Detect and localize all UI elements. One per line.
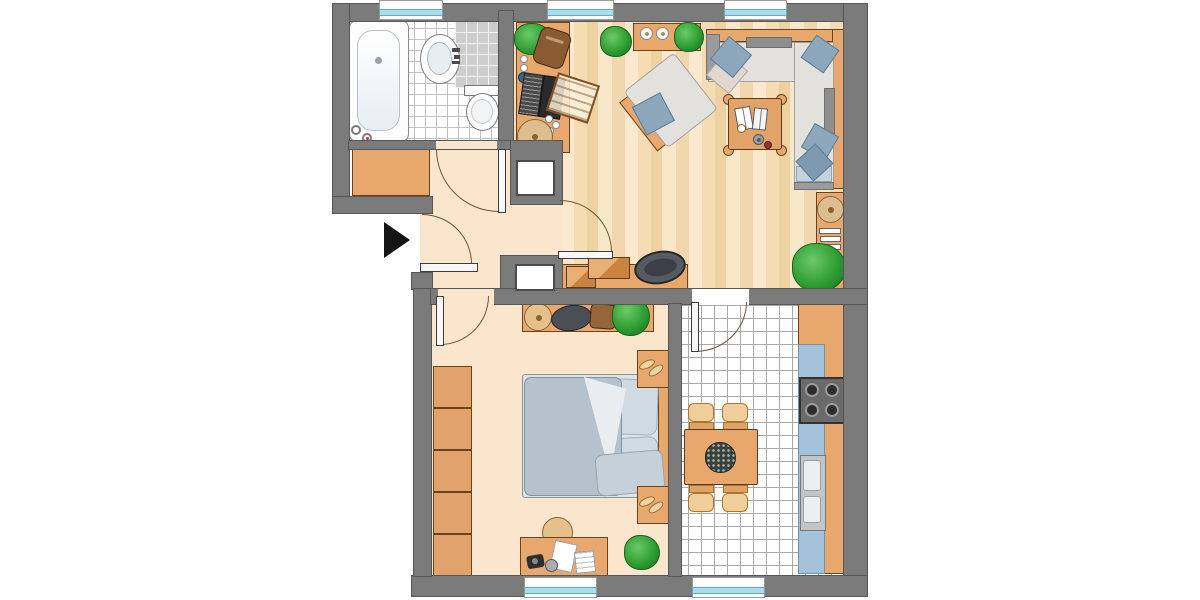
- cup: [737, 124, 746, 133]
- bedroom-door: [436, 296, 444, 346]
- dining-chair: [687, 403, 717, 431]
- kitchen-door: [691, 302, 699, 352]
- toilet: [466, 93, 499, 131]
- window-bathroom: [379, 0, 443, 20]
- book: [752, 107, 768, 130]
- stove: [799, 377, 845, 424]
- wall-entrance-upper: [332, 196, 433, 214]
- entrance-door: [420, 263, 478, 272]
- large-plant: [792, 243, 846, 292]
- duct-shaft: [515, 264, 555, 291]
- wall-bottom: [411, 575, 868, 597]
- window-bedroom: [524, 577, 597, 598]
- washbasin: [420, 34, 460, 84]
- bathtub: [349, 20, 409, 142]
- wall-left-upper: [332, 3, 350, 197]
- bedroom-plant: [624, 535, 660, 570]
- floor-plant: [600, 26, 632, 57]
- window-living-2: [724, 0, 787, 20]
- table-centerpiece: [705, 442, 736, 473]
- wall-hall-bottom: [430, 288, 868, 305]
- hatbox: [524, 303, 552, 331]
- cup: [764, 141, 772, 149]
- floor-plan: [0, 0, 1200, 600]
- storage-box: [588, 257, 630, 279]
- bathroom-door: [498, 149, 506, 213]
- window-living-1: [547, 0, 614, 20]
- bathroom-door-gap: [436, 141, 497, 149]
- nightstand: [637, 486, 670, 524]
- bowl: [656, 27, 669, 40]
- duct-shaft: [516, 160, 555, 196]
- kitchen-sink: [800, 455, 826, 531]
- notepad: [574, 550, 596, 574]
- wall-bedroom-kitchen: [668, 303, 682, 577]
- window-kitchen: [692, 577, 765, 598]
- hallway-cabinet: [352, 149, 430, 196]
- dining-chair: [687, 484, 717, 512]
- basket-on-shelf: [817, 196, 844, 223]
- plant-on-sideboard: [674, 22, 704, 52]
- wall-bathroom-right: [498, 10, 514, 150]
- dining-chair: [721, 403, 751, 431]
- basin-faucet: [452, 48, 460, 52]
- sofa-back-cushion: [746, 37, 792, 48]
- bath-tap: [351, 125, 361, 135]
- magazines: [819, 228, 841, 234]
- sofa-back-cushion: [824, 88, 835, 134]
- living-door: [558, 251, 613, 259]
- bathtub-drain: [375, 57, 382, 64]
- wall-bedroom-left: [413, 288, 432, 577]
- cup: [753, 134, 764, 145]
- nightstand: [637, 350, 670, 388]
- entrance-arrow-icon: [384, 222, 410, 258]
- dining-chair: [721, 484, 751, 512]
- wardrobe: [433, 366, 472, 577]
- bowl: [640, 27, 653, 40]
